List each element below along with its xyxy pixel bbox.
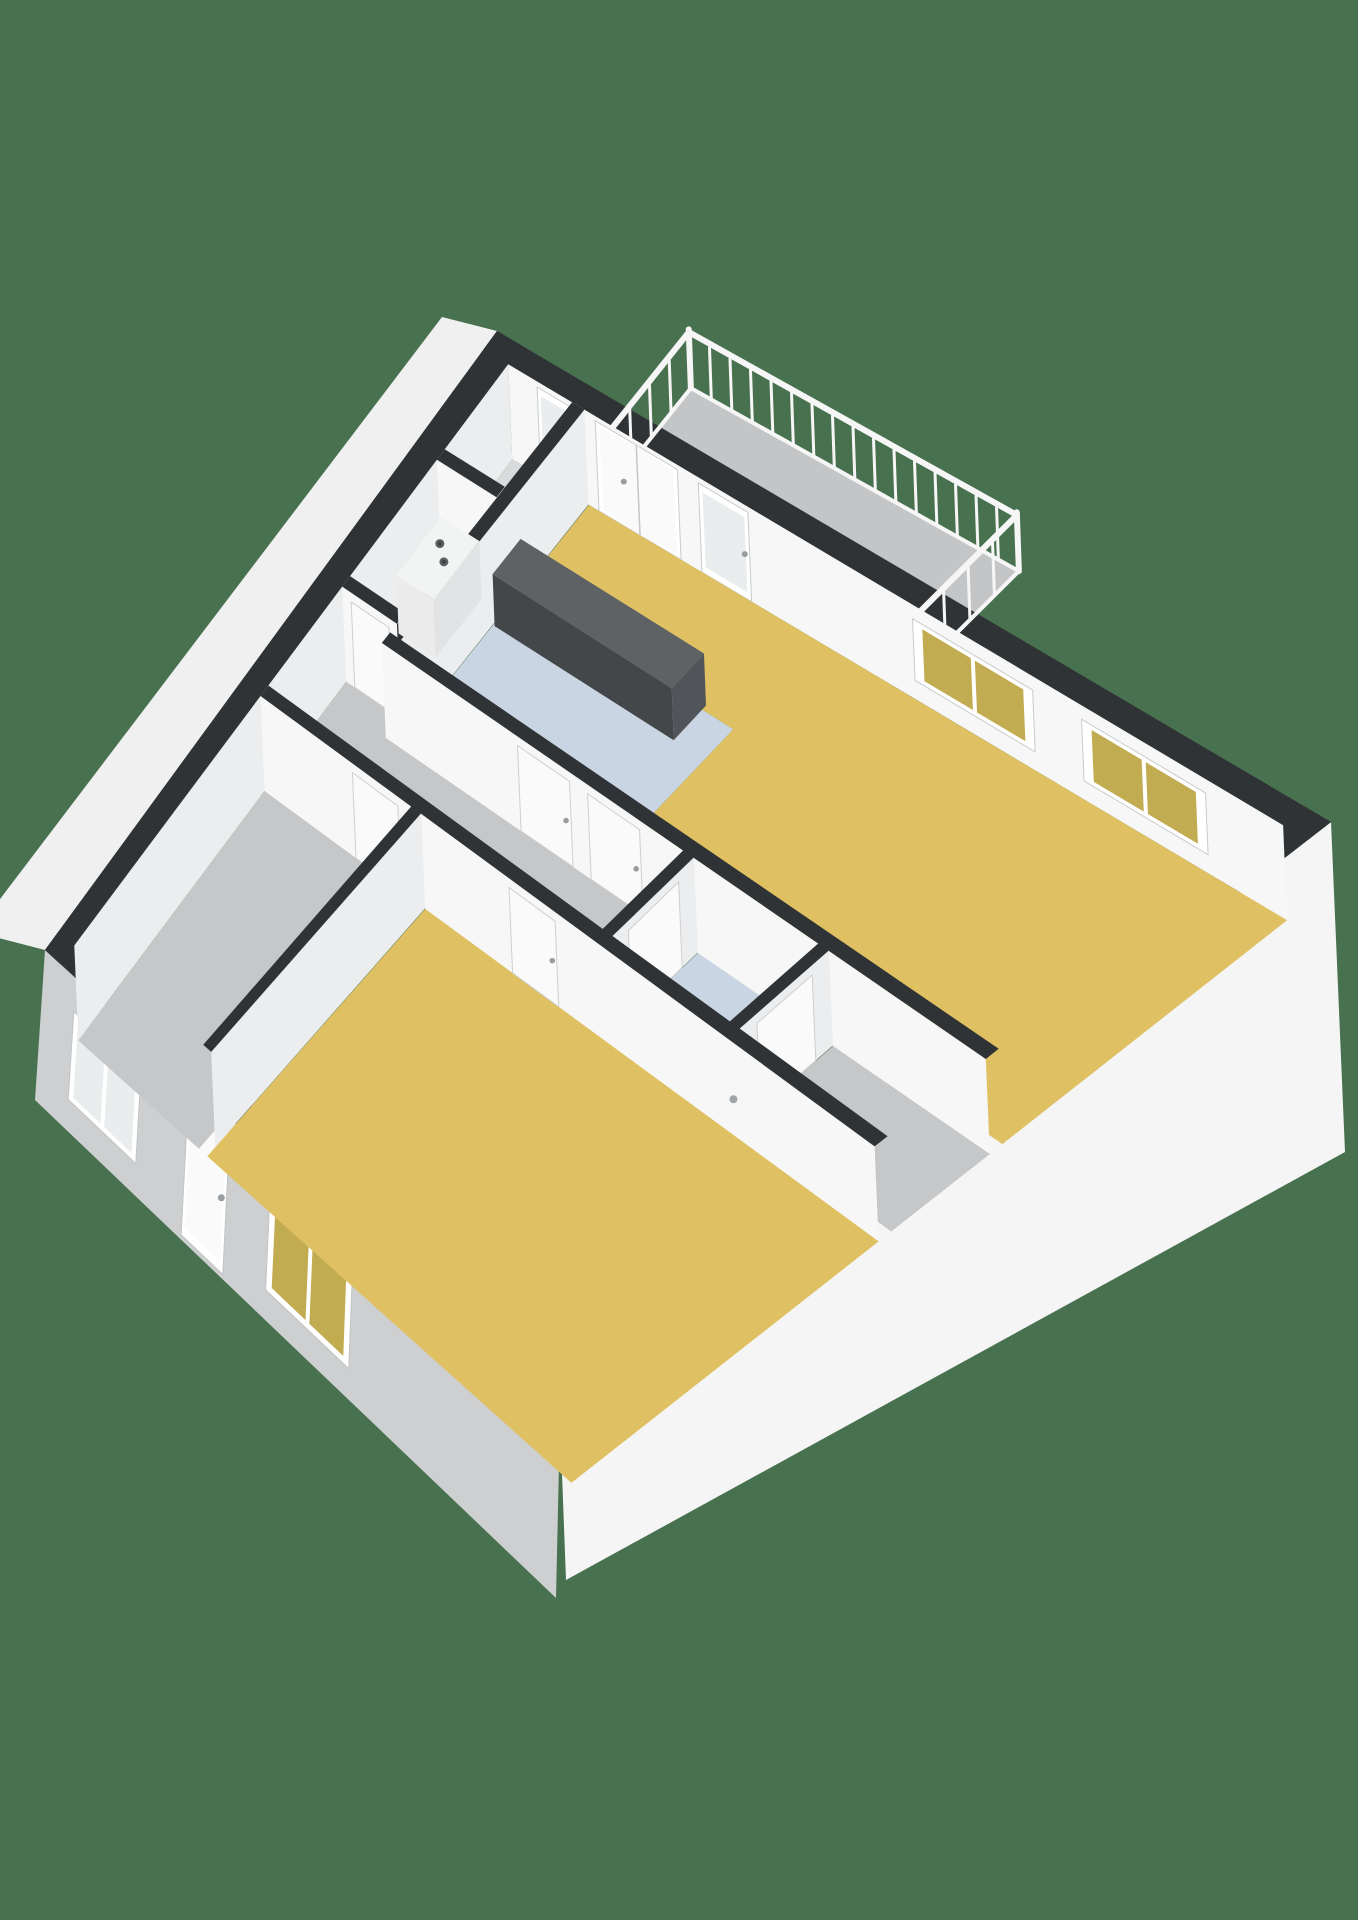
railing-baluster xyxy=(968,568,970,620)
floorplan-figure xyxy=(0,0,1358,1920)
entry-door-handle xyxy=(218,1194,225,1201)
railing-baluster xyxy=(833,416,835,468)
living-window-1-mullion xyxy=(973,659,975,711)
railing-baluster xyxy=(750,370,752,422)
railing-baluster xyxy=(976,496,978,548)
railing-baluster xyxy=(874,439,876,491)
boiler-knob-center-2 xyxy=(442,560,446,564)
railing-baluster xyxy=(853,428,855,480)
railing-baluster xyxy=(812,405,814,457)
railing-baluster xyxy=(730,359,732,411)
railing-baluster xyxy=(771,382,773,434)
railing-baluster xyxy=(956,485,958,537)
railing-baluster xyxy=(709,347,711,399)
railing-baluster xyxy=(650,385,652,437)
floorplan-3d-view xyxy=(0,0,1358,1920)
hall-bedroom-wall-door-2-handle xyxy=(549,958,555,964)
living-window-2-mullion xyxy=(1144,761,1146,813)
railing-baluster xyxy=(935,473,937,525)
railing-corner-post xyxy=(1017,512,1019,571)
railing-baluster xyxy=(669,361,671,413)
living-hall-wall-door-2-handle xyxy=(633,866,639,872)
bathroom-drain xyxy=(729,1095,737,1103)
boiler-knob-center-1 xyxy=(438,542,442,546)
living-hall-wall-door-1-handle xyxy=(563,818,569,824)
balcony-glass-door-2-handle xyxy=(742,551,748,557)
railing-baluster xyxy=(894,450,896,502)
railing-baluster xyxy=(915,462,917,514)
railing-corner-post xyxy=(689,329,691,388)
balcony-double-door-handle xyxy=(621,479,627,485)
railing-baluster xyxy=(993,543,995,595)
railing-baluster xyxy=(791,393,793,445)
